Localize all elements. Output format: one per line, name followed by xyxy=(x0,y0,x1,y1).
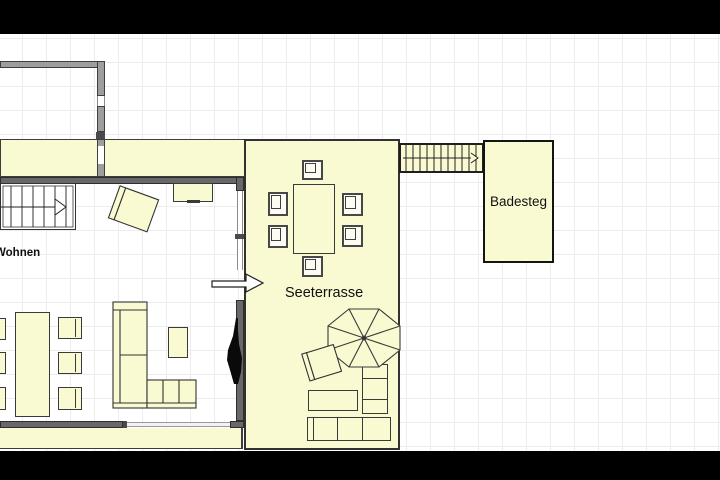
terrace-label: Seeterrasse xyxy=(285,285,363,301)
floor-plan-image: Badesteg xyxy=(0,0,720,480)
terrace-chair-rotated xyxy=(302,345,342,381)
parasol-icon xyxy=(328,309,400,367)
armchair-rotated xyxy=(108,186,158,232)
door-direction-arrow-icon xyxy=(212,274,263,292)
fireplace-icon xyxy=(227,318,242,384)
living-room-label: Wohnen xyxy=(0,247,40,259)
plan-drawing-overlay xyxy=(0,0,720,480)
jetty-stairs-treads xyxy=(403,145,478,171)
corner-sofa xyxy=(113,302,196,408)
staircase xyxy=(0,184,76,230)
